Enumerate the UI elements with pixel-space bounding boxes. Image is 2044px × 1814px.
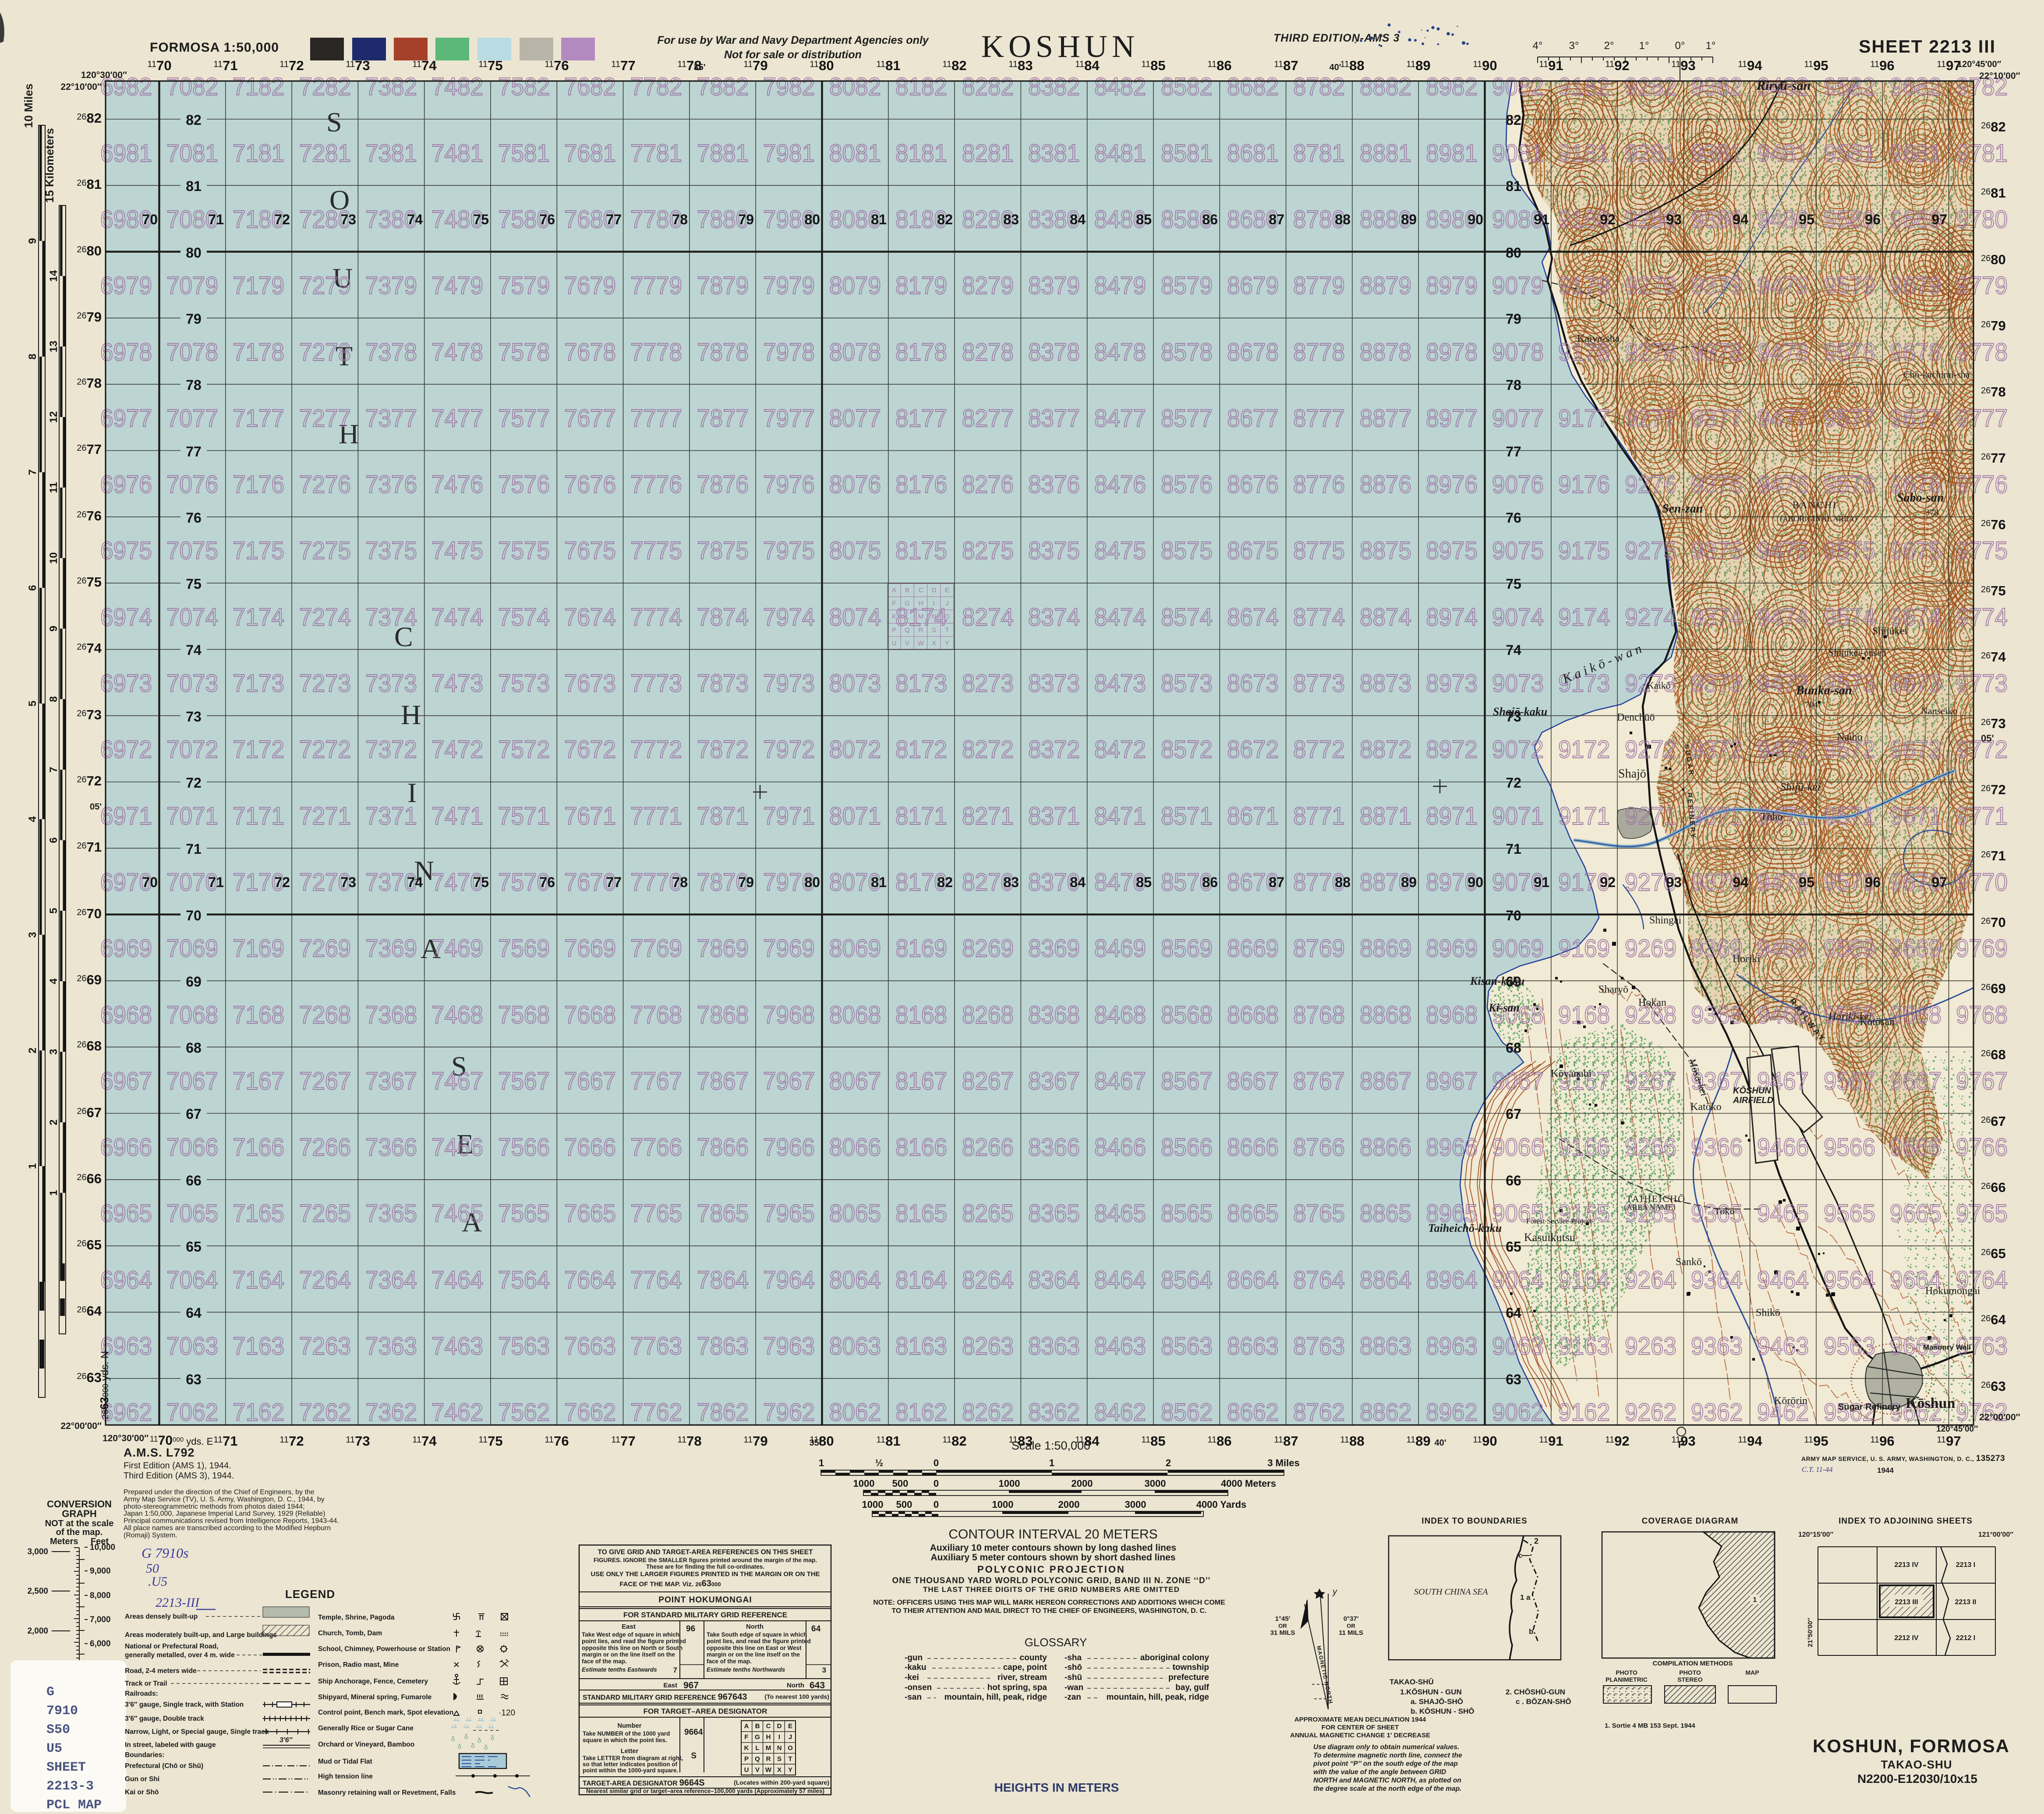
svg-text:9366: 9366: [1691, 1133, 1743, 1161]
svg-text:3 Miles: 3 Miles: [1267, 1457, 1299, 1468]
svg-text:72: 72: [274, 874, 290, 890]
svg-text:Q: Q: [905, 626, 910, 634]
svg-text:7973: 7973: [763, 669, 815, 697]
svg-text:AIRFIELD: AIRFIELD: [1733, 1096, 1773, 1105]
svg-text:79: 79: [186, 311, 202, 327]
svg-text:7764: 7764: [630, 1266, 682, 1294]
svg-text:7877: 7877: [697, 404, 749, 432]
svg-text:9176: 9176: [1558, 470, 1610, 499]
svg-text:05': 05': [1981, 733, 1994, 744]
svg-text:96: 96: [1865, 212, 1881, 227]
svg-text:74: 74: [407, 874, 423, 890]
svg-text:7871: 7871: [697, 802, 749, 830]
svg-text:3: 3: [48, 1049, 60, 1054]
svg-text:8763: 8763: [1293, 1332, 1345, 1360]
svg-text:7767: 7767: [630, 1067, 682, 1095]
svg-text:70: 70: [186, 908, 202, 923]
svg-text:Forest Service Project: Forest Service Project: [1526, 1217, 1592, 1225]
svg-text:9076: 9076: [1492, 470, 1544, 499]
svg-text:22°10′00″: 22°10′00″: [1979, 71, 2020, 81]
svg-text:Kōshun: Kōshun: [1906, 1395, 1955, 1411]
svg-text:7875: 7875: [697, 537, 749, 565]
svg-text:river, stream: river, stream: [997, 1673, 1047, 1682]
svg-text:9371: 9371: [1691, 802, 1743, 830]
svg-text:9775: 9775: [1956, 537, 2008, 565]
svg-text:7174: 7174: [233, 603, 284, 631]
svg-text:7781: 7781: [630, 139, 682, 167]
svg-text:8969: 8969: [1426, 934, 1478, 962]
svg-text:7: 7: [27, 469, 39, 475]
svg-text:7276: 7276: [299, 470, 351, 499]
svg-text:3,000: 3,000: [27, 1547, 48, 1556]
svg-text:These are for finding the full: These are for finding the full co-ordina…: [646, 1563, 764, 1570]
svg-text:9776: 9776: [1956, 470, 2008, 499]
svg-text:Nanseiko: Nanseiko: [1921, 705, 1957, 716]
svg-text:9175: 9175: [1558, 537, 1610, 565]
svg-text:78: 78: [1506, 377, 1521, 393]
svg-text:PHOTO: PHOTO: [1679, 1669, 1701, 1676]
svg-text:Prepared under the direction o: Prepared under the direction of the Chie…: [124, 1489, 315, 1496]
svg-text:7766: 7766: [630, 1133, 682, 1161]
svg-text:bay, gulf: bay, gulf: [1175, 1683, 1209, 1692]
svg-text:8479: 8479: [1094, 272, 1146, 300]
svg-text:70: 70: [142, 874, 158, 890]
svg-text:71: 71: [186, 841, 202, 857]
svg-text:9576: 9576: [1824, 470, 1875, 499]
svg-text:8967: 8967: [1426, 1067, 1478, 1095]
svg-text:Sen-zan: Sen-zan: [1662, 502, 1703, 516]
svg-text:H: H: [919, 600, 923, 607]
svg-text:Sugar Refinery: Sugar Refinery: [1838, 1402, 1901, 1412]
svg-text:Boundaries:: Boundaries:: [125, 1751, 164, 1759]
svg-text:(AREA NAME): (AREA NAME): [1624, 1203, 1676, 1212]
svg-text:8364: 8364: [1028, 1266, 1080, 1294]
svg-text:-shō: -shō: [1064, 1663, 1082, 1672]
svg-text:8368: 8368: [1028, 1001, 1080, 1029]
svg-text:P: P: [892, 626, 896, 634]
svg-text:7963: 7963: [763, 1332, 815, 1360]
svg-text:7469: 7469: [431, 934, 483, 962]
svg-text:2213 I: 2213 I: [1956, 1561, 1975, 1569]
svg-text:mountain, hill, peak, ridge: mountain, hill, peak, ridge: [1107, 1693, 1209, 1702]
svg-text:Kasuikutsu: Kasuikutsu: [1524, 1231, 1575, 1244]
svg-text:7566: 7566: [498, 1133, 550, 1161]
svg-text:Kōyanabi: Kōyanabi: [1551, 1068, 1592, 1079]
svg-text:9768: 9768: [1956, 1001, 2008, 1029]
svg-text:7178: 7178: [233, 338, 284, 366]
svg-text:7682: 7682: [564, 73, 616, 101]
svg-text:72: 72: [186, 775, 202, 791]
svg-text:V: V: [755, 1766, 760, 1774]
svg-text:94: 94: [1733, 874, 1748, 890]
svg-text:7978: 7978: [763, 338, 815, 366]
svg-text:Generally Rice or Sugar Cane: Generally Rice or Sugar Cane: [318, 1725, 414, 1732]
svg-text:7672: 7672: [564, 736, 616, 764]
svg-text:7: 7: [48, 767, 60, 772]
svg-text:6973: 6973: [100, 669, 152, 697]
svg-text:8769: 8769: [1293, 934, 1345, 962]
svg-text:8469: 8469: [1094, 934, 1146, 962]
svg-text:65: 65: [1506, 1239, 1521, 1255]
svg-text:8576: 8576: [1161, 470, 1213, 499]
svg-text:9774: 9774: [1956, 603, 2008, 631]
svg-text:8579: 8579: [1161, 272, 1213, 300]
svg-text:Mud or Tidal Flat: Mud or Tidal Flat: [318, 1758, 372, 1765]
svg-text:9381: 9381: [1691, 139, 1743, 167]
svg-text:6975: 6975: [100, 537, 152, 565]
svg-text:7872: 7872: [697, 736, 749, 764]
svg-text:21°50′00″: 21°50′00″: [1807, 1618, 1814, 1647]
svg-text:8476: 8476: [1094, 470, 1146, 499]
svg-text:J: J: [789, 1733, 792, 1741]
svg-text:8679: 8679: [1227, 272, 1279, 300]
svg-text:7074: 7074: [166, 603, 218, 631]
svg-text:72: 72: [274, 212, 290, 227]
svg-text:7165: 7165: [233, 1199, 284, 1227]
svg-text:8167: 8167: [895, 1067, 947, 1095]
svg-text:Shijukei-onsen: Shijukei-onsen: [1828, 647, 1886, 658]
svg-text:7966: 7966: [763, 1133, 815, 1161]
svg-text:85: 85: [1136, 212, 1152, 227]
svg-text:CONTOUR INTERVAL 20 METERS: CONTOUR INTERVAL 20 METERS: [948, 1527, 1157, 1542]
svg-text:9474: 9474: [1757, 603, 1809, 631]
svg-text:9463: 9463: [1757, 1332, 1809, 1360]
svg-text:9578: 9578: [1824, 338, 1875, 366]
svg-text:8172: 8172: [895, 736, 947, 764]
svg-text:7769: 7769: [630, 934, 682, 962]
svg-text:40': 40': [1329, 63, 1341, 72]
svg-text:Kaikō: Kaikō: [1647, 680, 1671, 691]
svg-text:9563: 9563: [1824, 1332, 1875, 1360]
svg-text:9379: 9379: [1691, 272, 1743, 300]
svg-text:7881: 7881: [697, 139, 749, 167]
svg-text:7965: 7965: [763, 1199, 815, 1227]
svg-text:K: K: [744, 1744, 749, 1752]
svg-text:L: L: [905, 613, 909, 620]
svg-text:7077: 7077: [166, 404, 218, 432]
svg-text:7068: 7068: [166, 1001, 218, 1029]
svg-text:8175: 8175: [895, 537, 947, 565]
svg-text:7577: 7577: [498, 404, 550, 432]
svg-text:W: W: [765, 1766, 772, 1774]
svg-text:COVERAGE DIAGRAM: COVERAGE DIAGRAM: [1642, 1517, 1739, 1526]
svg-text:64: 64: [186, 1305, 202, 1321]
svg-text:9665: 9665: [1890, 1199, 1941, 1227]
svg-text:HEIGHTS IN METERS: HEIGHTS IN METERS: [994, 1781, 1119, 1794]
svg-text:8471: 8471: [1094, 802, 1146, 830]
svg-text:8376: 8376: [1028, 470, 1080, 499]
svg-text:INDEX TO ADJOINING SHEETS: INDEX TO ADJOINING SHEETS: [1839, 1517, 1973, 1526]
svg-text:85: 85: [1136, 874, 1152, 890]
svg-text:9372: 9372: [1691, 736, 1743, 764]
svg-text:9174: 9174: [1558, 603, 1610, 631]
svg-text:1: 1: [1049, 1457, 1054, 1468]
svg-text:8065: 8065: [829, 1199, 881, 1227]
svg-text:7662: 7662: [564, 1398, 616, 1426]
svg-text:8262: 8262: [962, 1398, 1014, 1426]
svg-text:8264: 8264: [962, 1266, 1014, 1294]
svg-text:9072: 9072: [1492, 736, 1544, 764]
svg-text:7867: 7867: [697, 1067, 749, 1095]
svg-text:7069: 7069: [166, 934, 218, 962]
svg-text:7: 7: [673, 1666, 677, 1674]
svg-text:S: S: [691, 1751, 697, 1761]
svg-text:Not for sale or distribution: Not for sale or distribution: [724, 49, 862, 61]
svg-text:8073: 8073: [829, 669, 881, 697]
svg-text:4: 4: [27, 816, 39, 822]
svg-text:7574: 7574: [498, 603, 550, 631]
svg-text:65: 65: [186, 1239, 202, 1255]
svg-text:79: 79: [738, 874, 754, 890]
svg-text:To determine magnetic north li: To determine magnetic north line, connec…: [1313, 1752, 1462, 1759]
svg-text:Horiki: Horiki: [1733, 953, 1760, 965]
svg-text:7264: 7264: [299, 1266, 351, 1294]
svg-text:7673: 7673: [564, 669, 616, 697]
svg-text:c: c: [1518, 1552, 1522, 1559]
svg-text:8166: 8166: [895, 1133, 947, 1161]
svg-text:Japan 1:50,000, Japanese Imper: Japan 1:50,000, Japanese Imperial Land S…: [124, 1510, 325, 1517]
svg-text:9681: 9681: [1890, 139, 1941, 167]
svg-text:For use by War and Navy Depart: For use by War and Navy Department Agenc…: [657, 34, 929, 46]
svg-text:70: 70: [142, 212, 158, 227]
svg-text:Narrow, Light, or Special gaug: Narrow, Light, or Special gauge, Single …: [125, 1728, 269, 1736]
svg-text:-wan: -wan: [1064, 1683, 1083, 1692]
svg-text:81: 81: [186, 178, 202, 194]
svg-text:7467: 7467: [431, 1067, 483, 1095]
svg-text:1°: 1°: [1639, 40, 1649, 52]
svg-text:7873: 7873: [697, 669, 749, 697]
svg-text:8363: 8363: [1028, 1332, 1080, 1360]
svg-text:8574: 8574: [1161, 603, 1213, 631]
svg-text:500: 500: [892, 1478, 909, 1489]
svg-text:mountain, hill, peak, ridge: mountain, hill, peak, ridge: [944, 1693, 1047, 1702]
svg-text:7774: 7774: [630, 603, 682, 631]
svg-text:8879: 8879: [1360, 272, 1411, 300]
svg-text:9269: 9269: [1625, 934, 1676, 962]
svg-text:9062: 9062: [1492, 1398, 1544, 1426]
svg-text:8278: 8278: [962, 338, 1014, 366]
svg-text:7962: 7962: [763, 1398, 815, 1426]
svg-text:9781: 9781: [1956, 139, 2008, 167]
svg-text:64: 64: [1506, 1305, 1521, 1321]
svg-text:8563: 8563: [1161, 1332, 1213, 1360]
svg-text:9667: 9667: [1890, 1067, 1941, 1095]
svg-text:USE ONLY THE LARGER FIGURES PR: USE ONLY THE LARGER FIGURES PRINTED IN T…: [591, 1570, 820, 1578]
svg-text:1000: 1000: [862, 1499, 884, 1510]
svg-text:E: E: [788, 1722, 792, 1730]
svg-text:I: I: [778, 1733, 780, 1741]
svg-text:8672: 8672: [1227, 736, 1279, 764]
svg-text:67: 67: [186, 1106, 202, 1122]
svg-text:(ABORIGINAL AREA): (ABORIGINAL AREA): [1780, 514, 1857, 523]
svg-text:87: 87: [1269, 212, 1284, 227]
svg-text:7862: 7862: [697, 1398, 749, 1426]
svg-text:8372: 8372: [1028, 736, 1080, 764]
svg-text:8773: 8773: [1293, 669, 1345, 697]
svg-text:INDEX TO BOUNDARIES: INDEX TO BOUNDARIES: [1422, 1517, 1527, 1526]
svg-text:9477: 9477: [1757, 404, 1809, 432]
svg-text:FIGURES. IGNORE the SMALLER fi: FIGURES. IGNORE the SMALLER figures prin…: [594, 1557, 817, 1563]
svg-text:8962: 8962: [1426, 1398, 1478, 1426]
svg-text:6974: 6974: [100, 603, 152, 631]
svg-text:3°: 3°: [1569, 40, 1579, 52]
svg-text:76: 76: [539, 212, 555, 227]
svg-text:E: E: [945, 587, 949, 594]
svg-text:8666: 8666: [1227, 1133, 1279, 1161]
svg-text:8064: 8064: [829, 1266, 881, 1294]
svg-text:7063: 7063: [166, 1332, 218, 1360]
svg-text:2213 IV: 2213 IV: [1894, 1561, 1918, 1569]
svg-text:7282: 7282: [299, 73, 351, 101]
svg-text:8775: 8775: [1293, 537, 1345, 565]
svg-text:9481: 9481: [1757, 139, 1809, 167]
svg-text:9078: 9078: [1492, 338, 1544, 366]
svg-text:9: 9: [48, 626, 60, 631]
svg-text:7563: 7563: [498, 1332, 550, 1360]
svg-text:Sankō: Sankō: [1676, 1256, 1702, 1268]
svg-text:9164: 9164: [1558, 1266, 1610, 1294]
svg-text:9073: 9073: [1492, 669, 1544, 697]
svg-text:7876: 7876: [697, 470, 749, 499]
svg-text:9766: 9766: [1956, 1133, 2008, 1161]
svg-text:9679: 9679: [1890, 272, 1941, 300]
svg-text:3′6″: 3′6″: [279, 1736, 293, 1744]
svg-text:2,000: 2,000: [27, 1627, 48, 1636]
svg-text:7982: 7982: [763, 73, 815, 101]
svg-text:2212 I: 2212 I: [1956, 1634, 1975, 1642]
svg-text:8975: 8975: [1426, 537, 1478, 565]
svg-text:2. CHŌSHŪ-GUN: 2. CHŌSHŪ-GUN: [1506, 1688, 1565, 1696]
svg-text:8978: 8978: [1426, 338, 1478, 366]
svg-text:7479: 7479: [431, 272, 483, 300]
svg-text:M: M: [766, 1744, 771, 1752]
svg-text:7166: 7166: [233, 1133, 284, 1161]
svg-text:78: 78: [672, 212, 688, 227]
svg-text:Scale 1:50,000: Scale 1:50,000: [1011, 1439, 1090, 1452]
svg-text:(Locates within 200-yard squar: (Locates within 200-yard square): [734, 1779, 829, 1786]
svg-text:9274: 9274: [1625, 603, 1676, 631]
svg-text:7362: 7362: [365, 1398, 417, 1426]
svg-text:School, Chimney, Powerhouse or: School, Chimney, Powerhouse or Station: [318, 1645, 450, 1653]
svg-text:8177: 8177: [895, 404, 947, 432]
svg-text:National or Prefectural Road,: National or Prefectural Road,: [125, 1643, 219, 1650]
svg-text:91: 91: [1534, 212, 1549, 227]
svg-text:7762: 7762: [630, 1398, 682, 1426]
svg-text:Areas densely built-up: Areas densely built-up: [125, 1613, 198, 1620]
svg-text:8675: 8675: [1227, 537, 1279, 565]
svg-text:82: 82: [937, 874, 953, 890]
svg-text:c . BŌZAN-SHŌ: c . BŌZAN-SHŌ: [1516, 1697, 1571, 1706]
svg-text:9569: 9569: [1824, 934, 1875, 962]
svg-text:A.M.S. L792: A.M.S. L792: [124, 1446, 195, 1459]
svg-text:SOUTH CHINA SEA: SOUTH CHINA SEA: [1414, 1587, 1488, 1597]
svg-text:87: 87: [1269, 874, 1284, 890]
svg-text:7477: 7477: [431, 404, 483, 432]
svg-text:7768: 7768: [630, 1001, 682, 1029]
svg-text:GRAPH: GRAPH: [62, 1508, 96, 1519]
svg-text:Control point, Bench mark, Spo: Control point, Bench mark, Spot elevatio…: [318, 1709, 453, 1716]
svg-text:O: O: [944, 613, 950, 620]
svg-text:7564: 7564: [498, 1266, 550, 1294]
svg-text:N: N: [777, 1744, 782, 1752]
svg-text:9082: 9082: [1492, 73, 1544, 101]
svg-text:7177: 7177: [233, 404, 284, 432]
svg-text:7066: 7066: [166, 1133, 218, 1161]
svg-text:81: 81: [871, 212, 887, 227]
svg-text:of the map.: of the map.: [56, 1528, 103, 1537]
svg-text:8381: 8381: [1028, 139, 1080, 167]
svg-text:8467: 8467: [1094, 1067, 1146, 1095]
svg-text:High tension line: High tension line: [318, 1773, 373, 1780]
svg-text:Katōko: Katōko: [1690, 1101, 1722, 1113]
svg-text:7371: 7371: [365, 802, 417, 830]
svg-text:O: O: [788, 1744, 793, 1752]
svg-text:7277: 7277: [299, 404, 351, 432]
svg-text:7968: 7968: [763, 1001, 815, 1029]
svg-text:8664: 8664: [1227, 1266, 1279, 1294]
svg-text:9067: 9067: [1492, 1067, 1544, 1095]
svg-text:7863: 7863: [697, 1332, 749, 1360]
svg-text:90: 90: [1468, 212, 1483, 227]
svg-text:8677: 8677: [1227, 404, 1279, 432]
svg-text:G: G: [46, 1685, 54, 1700]
svg-text:7279: 7279: [299, 272, 351, 300]
svg-text:B: B: [905, 587, 909, 594]
svg-text:7910: 7910: [46, 1704, 78, 1719]
svg-text:9779: 9779: [1956, 272, 2008, 300]
svg-text:8872: 8872: [1360, 736, 1411, 764]
svg-text:2000: 2000: [1058, 1499, 1080, 1510]
svg-text:1000: 1000: [853, 1478, 875, 1489]
svg-text:9368: 9368: [1691, 1001, 1743, 1029]
svg-text:9181: 9181: [1558, 139, 1610, 167]
svg-text:7677: 7677: [564, 404, 616, 432]
svg-text:8179: 8179: [895, 272, 947, 300]
svg-text:75: 75: [1506, 576, 1521, 592]
svg-text:77: 77: [606, 874, 622, 890]
svg-text:9: 9: [27, 238, 39, 244]
svg-text:Ki-san: Ki-san: [1488, 1001, 1520, 1014]
svg-text:7364: 7364: [365, 1266, 417, 1294]
svg-text:Taiheichō-kaku: Taiheichō-kaku: [1428, 1222, 1502, 1234]
svg-text:9675: 9675: [1890, 537, 1941, 565]
svg-text:7576: 7576: [498, 470, 550, 499]
svg-text:8366: 8366: [1028, 1133, 1080, 1161]
svg-text:7171: 7171: [233, 802, 284, 830]
svg-text:8776: 8776: [1293, 470, 1345, 499]
svg-text:7062: 7062: [166, 1398, 218, 1426]
svg-text:C: C: [766, 1722, 771, 1730]
svg-text:7167: 7167: [233, 1067, 284, 1095]
svg-text:9780: 9780: [1956, 205, 2008, 233]
svg-text:TO GIVE GRID AND TARGET-AREA R: TO GIVE GRID AND TARGET-AREA REFERENCES …: [598, 1549, 813, 1556]
svg-text:TAKAO-SHU: TAKAO-SHU: [1881, 1758, 1952, 1771]
svg-text:D: D: [932, 587, 937, 594]
svg-text:9464: 9464: [1757, 1266, 1809, 1294]
svg-text:8369: 8369: [1028, 934, 1080, 962]
svg-text:97: 97: [1931, 874, 1947, 890]
svg-text:7367: 7367: [365, 1067, 417, 1095]
svg-text:8162: 8162: [895, 1398, 947, 1426]
svg-text:7865: 7865: [697, 1199, 749, 1227]
svg-text:7671: 7671: [564, 802, 616, 830]
svg-text:9577: 9577: [1824, 404, 1875, 432]
svg-text:66: 66: [186, 1173, 202, 1188]
svg-text:120°45′00″: 120°45′00″: [1957, 60, 2002, 69]
svg-text:96: 96: [1865, 874, 1881, 890]
svg-text:LEGEND: LEGEND: [285, 1588, 335, 1601]
svg-text:14: 14: [48, 270, 60, 282]
